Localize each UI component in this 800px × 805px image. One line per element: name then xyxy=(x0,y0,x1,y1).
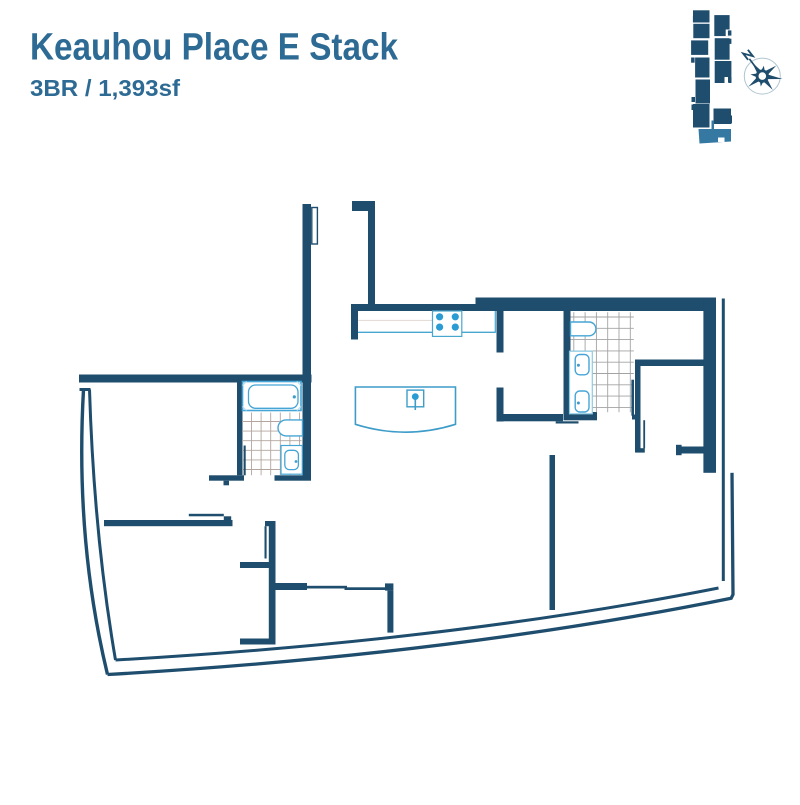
svg-text:3BR / 1,393sf: 3BR / 1,393sf xyxy=(30,75,180,101)
svg-text:Keauhou Place E Stack: Keauhou Place E Stack xyxy=(30,26,399,68)
